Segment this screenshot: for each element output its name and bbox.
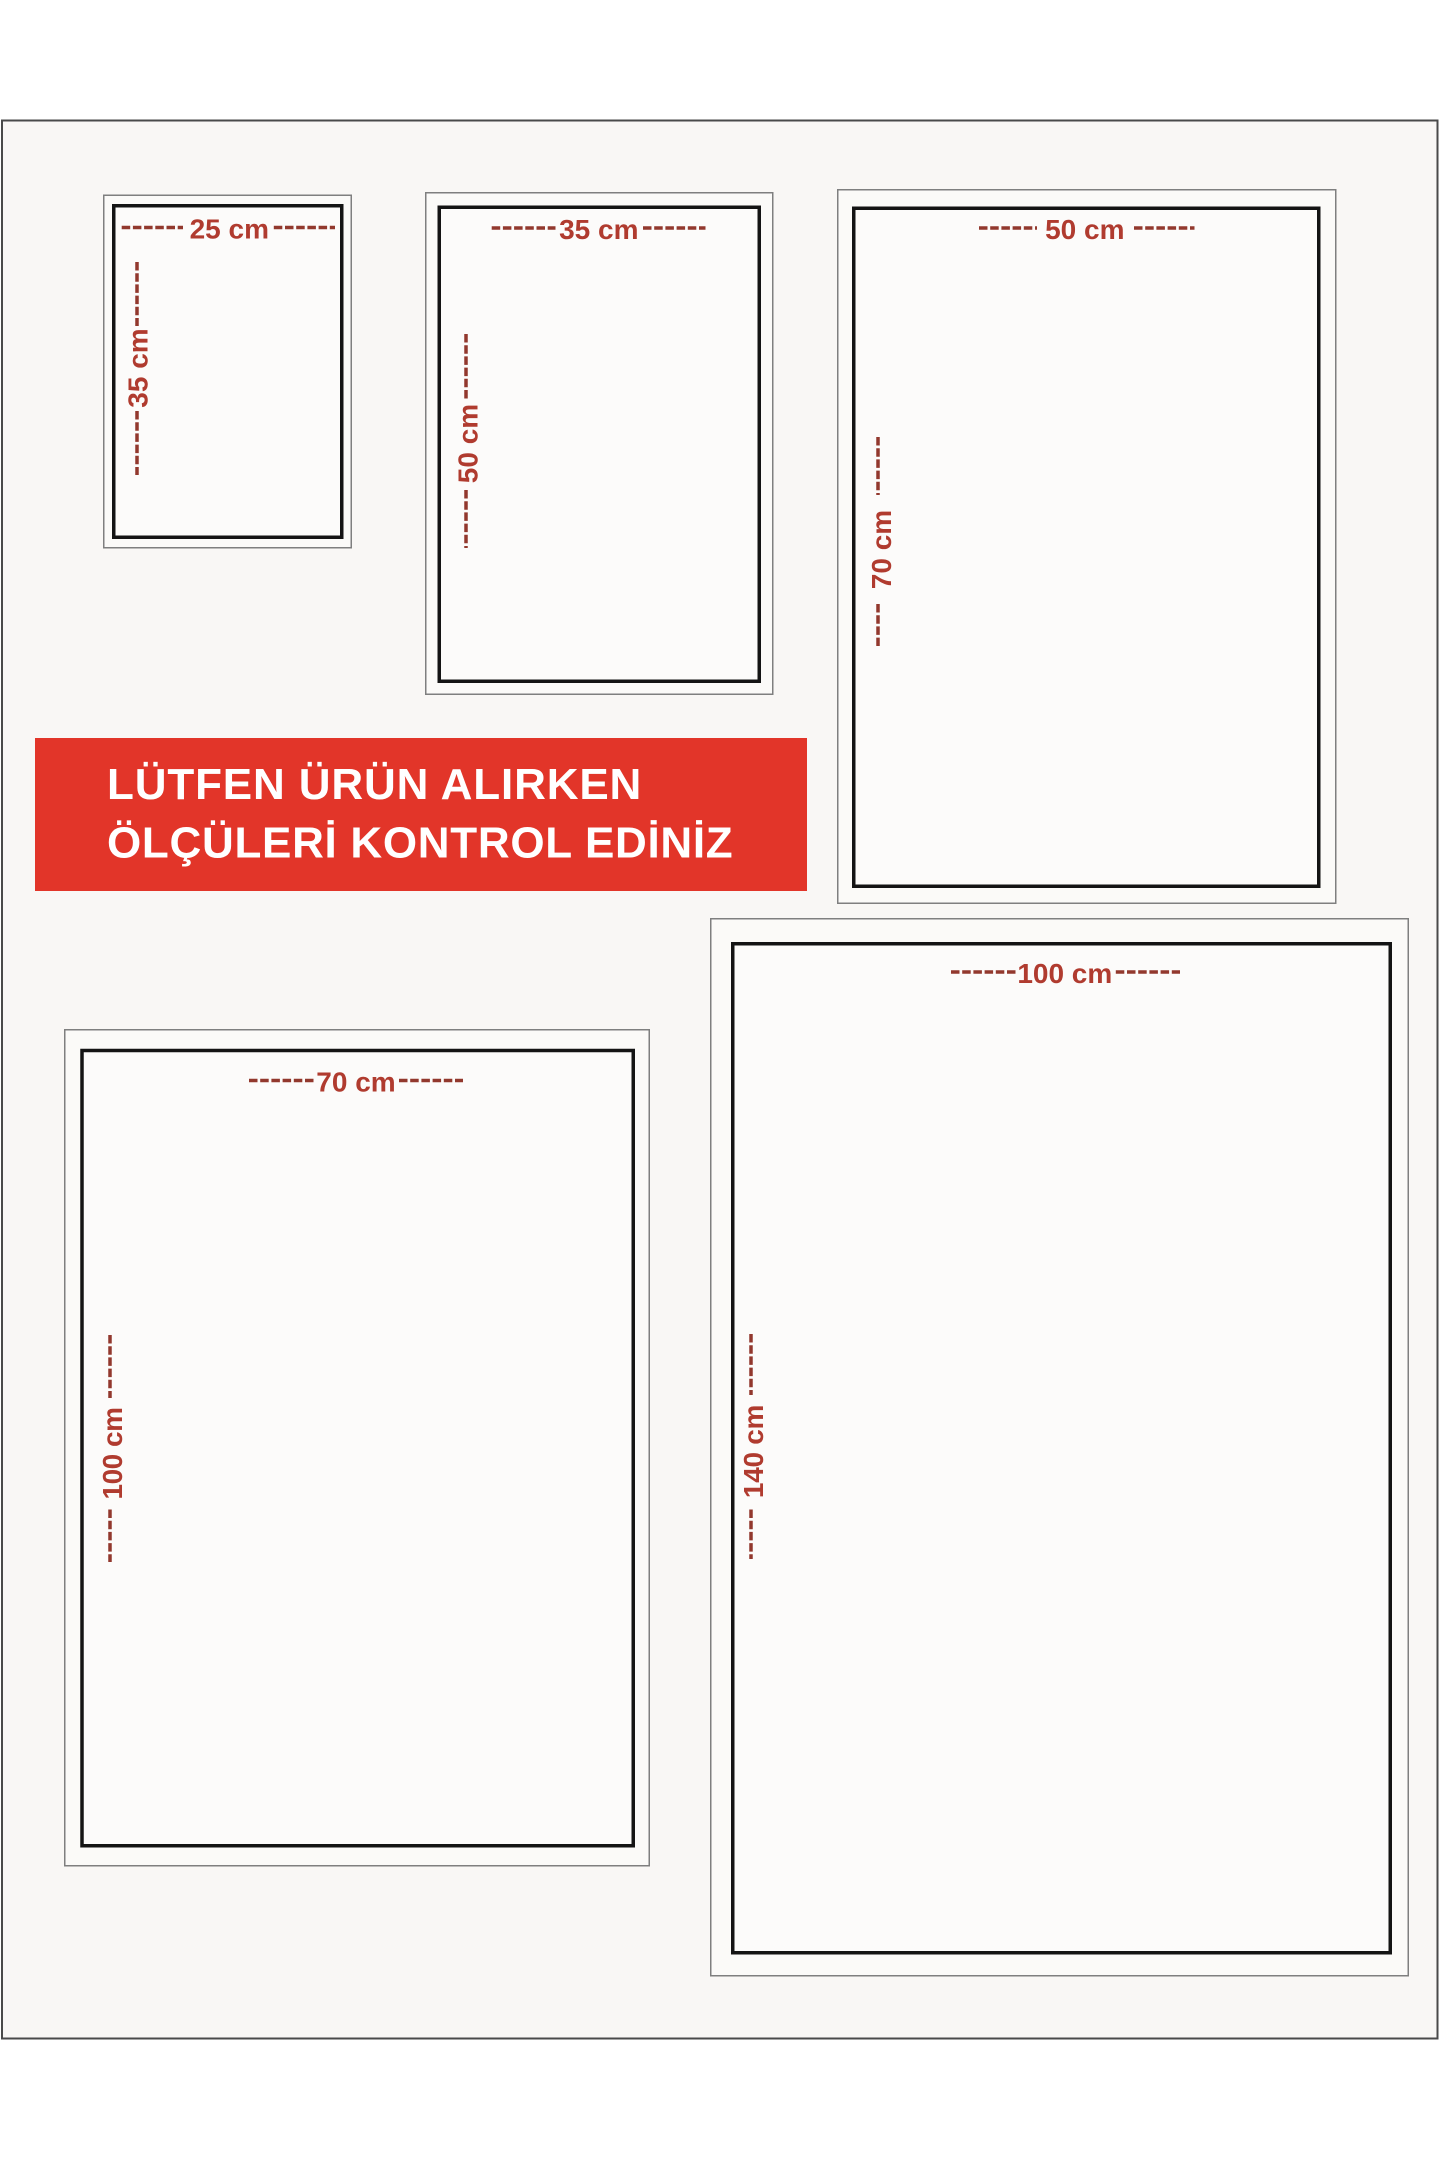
svg-text:25 cm: 25 cm [190, 214, 269, 245]
svg-text:50 cm: 50 cm [1045, 214, 1124, 245]
svg-text:50 cm: 50 cm [452, 404, 483, 483]
svg-text:70 cm: 70 cm [866, 510, 897, 589]
svg-text:70 cm: 70 cm [316, 1067, 395, 1098]
svg-text:100 cm: 100 cm [1017, 958, 1112, 989]
svg-text:LÜTFEN ÜRÜN ALIRKEN: LÜTFEN ÜRÜN ALIRKEN [107, 760, 642, 809]
svg-text:35 cm: 35 cm [123, 328, 154, 407]
svg-text:140 cm: 140 cm [738, 1405, 769, 1498]
svg-text:35 cm: 35 cm [559, 214, 638, 245]
svg-text:100 cm: 100 cm [97, 1408, 128, 1500]
svg-text:ÖLÇÜLERİ KONTROL EDİNİZ: ÖLÇÜLERİ KONTROL EDİNİZ [107, 819, 733, 868]
